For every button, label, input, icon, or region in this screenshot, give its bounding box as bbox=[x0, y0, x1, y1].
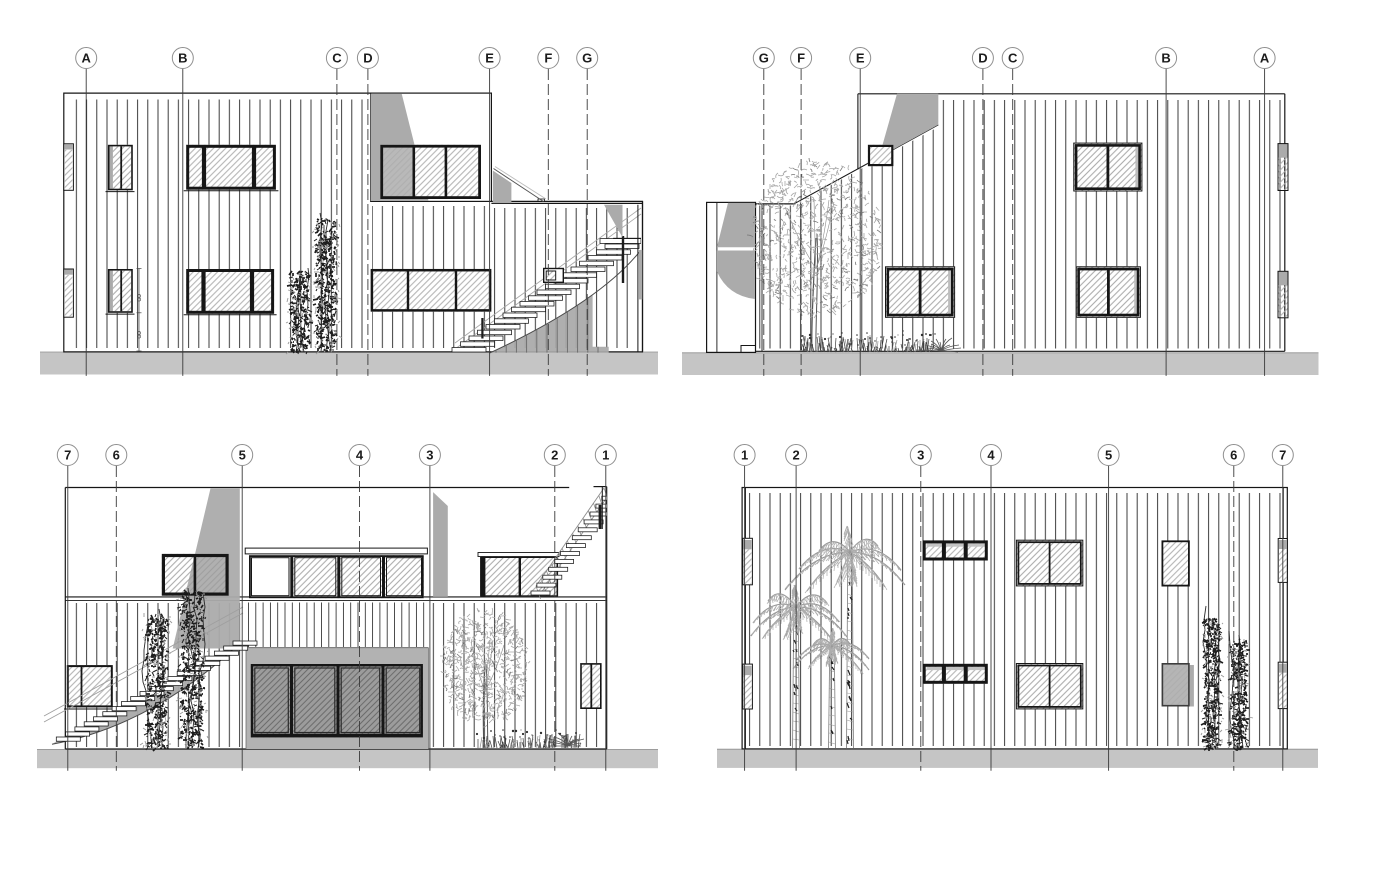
svg-text:7: 7 bbox=[64, 448, 71, 463]
svg-text:D: D bbox=[363, 51, 372, 66]
svg-text:4: 4 bbox=[987, 448, 995, 463]
svg-text:4: 4 bbox=[356, 448, 364, 463]
svg-text:1: 1 bbox=[741, 448, 748, 463]
svg-text:2: 2 bbox=[792, 448, 799, 463]
svg-text:C: C bbox=[332, 51, 342, 66]
svg-text:6: 6 bbox=[1230, 448, 1237, 463]
svg-text:C: C bbox=[1008, 51, 1018, 66]
svg-text:G: G bbox=[759, 51, 769, 66]
svg-text:D: D bbox=[978, 51, 987, 66]
svg-text:F: F bbox=[544, 51, 552, 66]
svg-text:F: F bbox=[797, 51, 805, 66]
svg-text:1: 1 bbox=[602, 448, 609, 463]
svg-text:A: A bbox=[1260, 51, 1270, 66]
svg-text:5: 5 bbox=[1105, 448, 1112, 463]
svg-text:E: E bbox=[485, 51, 494, 66]
svg-text:3: 3 bbox=[426, 448, 433, 463]
svg-text:A: A bbox=[82, 51, 92, 66]
svg-text:5: 5 bbox=[239, 448, 246, 463]
svg-text:G: G bbox=[582, 51, 592, 66]
svg-text:2: 2 bbox=[551, 448, 558, 463]
svg-text:7: 7 bbox=[1279, 448, 1286, 463]
svg-text:6: 6 bbox=[113, 448, 120, 463]
svg-text:B: B bbox=[1161, 51, 1170, 66]
svg-text:3: 3 bbox=[917, 448, 924, 463]
svg-text:E: E bbox=[856, 51, 865, 66]
svg-text:B: B bbox=[178, 51, 187, 66]
